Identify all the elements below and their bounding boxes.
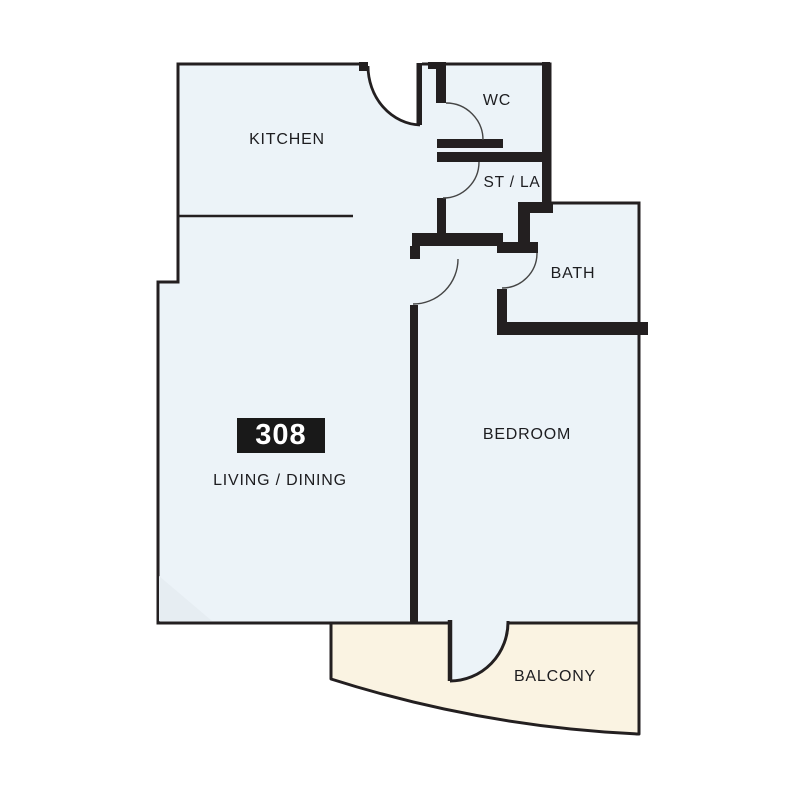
- room-label-balcony: BALCONY: [514, 668, 596, 686]
- wall-wc-bottom: [437, 139, 503, 148]
- wall-living-door-stub: [410, 246, 420, 259]
- wall-stla-left-lower: [437, 198, 446, 238]
- wall-corridor-bottom: [412, 233, 503, 246]
- wall-bath-left-lower: [497, 289, 507, 325]
- wall-stla-top: [437, 152, 550, 162]
- unit-number-badge: 308: [237, 418, 325, 453]
- floor-plan-canvas: KITCHEN WC ST / LA BATH BEDROOM LIVING /…: [0, 0, 800, 800]
- wall-wc-left-upper: [436, 62, 446, 103]
- room-label-kitchen: KITCHEN: [249, 131, 325, 149]
- wall-bath-bottom: [497, 322, 648, 335]
- wall-central-partition: [410, 305, 418, 623]
- wall-bath-notch: [518, 202, 553, 213]
- room-label-living-dining: LIVING / DINING: [213, 472, 347, 490]
- wall-bath-left-upper: [518, 213, 530, 242]
- wall-wc-right: [542, 62, 550, 203]
- room-label-st-la: ST / LA: [483, 174, 540, 192]
- unit-number: 308: [255, 419, 306, 452]
- room-label-bedroom: BEDROOM: [483, 426, 571, 444]
- unit-outline: [158, 64, 639, 623]
- wall-bath-door-header: [497, 242, 538, 253]
- floor-plan-drawing: [0, 0, 800, 800]
- entry-jamb-right: [428, 62, 436, 69]
- room-label-bath: BATH: [551, 265, 596, 283]
- room-label-wc: WC: [483, 92, 511, 110]
- entry-door-leaf: [417, 63, 423, 125]
- entry-jamb-left: [359, 62, 368, 71]
